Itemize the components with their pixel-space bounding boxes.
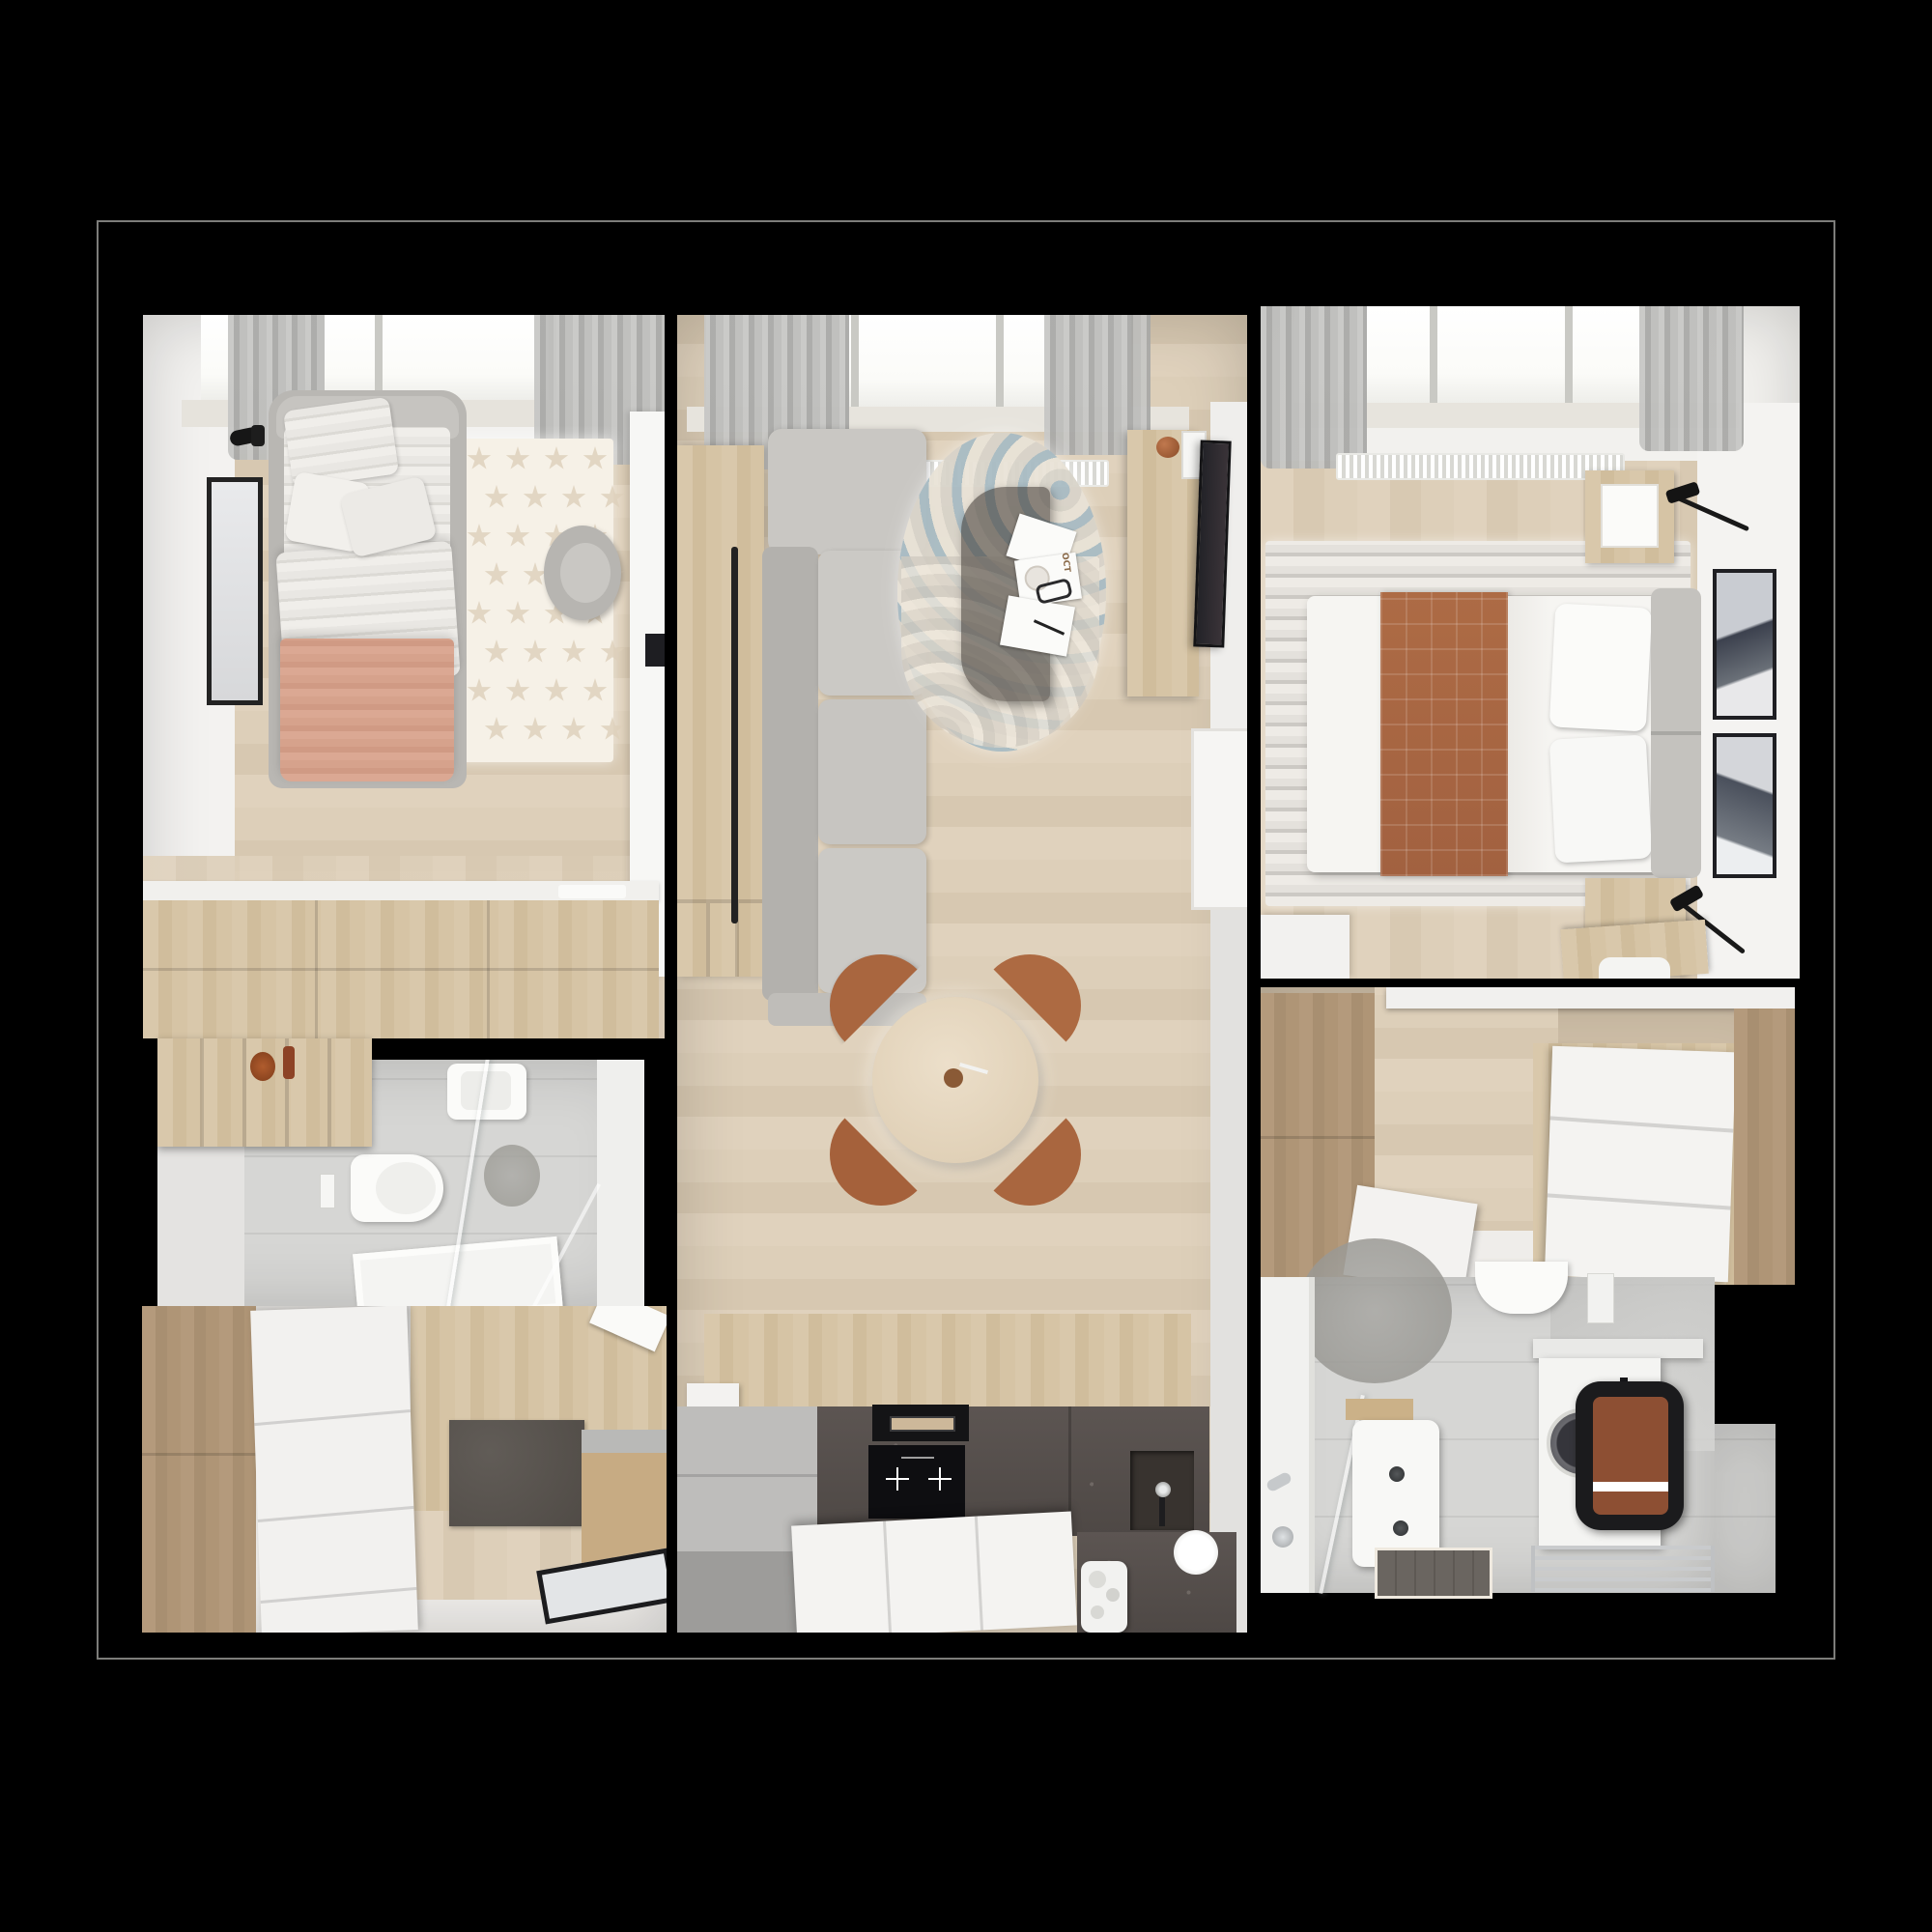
master-wall-art-2	[1713, 733, 1776, 878]
star-motif-icon	[484, 485, 509, 510]
master-radiator	[1336, 453, 1625, 480]
magazine-oct-label: OCT	[1059, 553, 1071, 574]
star-motif-icon	[467, 524, 492, 549]
star-motif-icon	[523, 717, 548, 742]
kids-dresser-tray	[558, 885, 626, 898]
entry-white-wardrobe	[250, 1306, 418, 1633]
star-motif-icon	[561, 639, 586, 665]
master-pillow-1	[1549, 603, 1653, 731]
kids-wall-mirror	[207, 477, 263, 705]
coffee-machine	[1081, 1561, 1127, 1633]
dressing-chest-drawers	[1545, 1046, 1736, 1282]
bath2-washbasin	[1352, 1420, 1439, 1567]
bath2-wall-item	[1587, 1273, 1614, 1323]
kids-laptop	[645, 634, 665, 667]
master-headboard	[1651, 588, 1701, 878]
room-master-bedroom	[1261, 306, 1800, 979]
sink-drain-icon	[1155, 1482, 1171, 1497]
kitchen-wall-wood	[704, 1314, 1191, 1406]
room-entry-hall	[142, 1306, 667, 1633]
entry-doormat	[449, 1420, 584, 1526]
master-pillow-2	[1549, 734, 1653, 863]
plate-stack-icon	[1174, 1530, 1218, 1575]
master-desk-chair	[1599, 957, 1670, 979]
bath2-shelf	[1533, 1339, 1703, 1358]
entry-cabinet-top	[582, 1430, 667, 1453]
room-dressing-hall	[1261, 987, 1795, 1285]
master-plaid-throw	[1380, 592, 1508, 876]
star-motif-icon	[544, 446, 569, 471]
kids-desk-chair-seat	[560, 543, 611, 603]
star-motif-icon	[561, 717, 586, 742]
decor-bottle-icon	[250, 1052, 275, 1081]
room-living-kitchen: OCT	[677, 315, 1247, 1633]
room-bathroom-shower	[157, 1038, 644, 1310]
star-motif-icon	[505, 524, 530, 549]
kids-dresser	[143, 900, 659, 1038]
kids-window-mullion	[375, 315, 383, 400]
star-motif-icon	[523, 485, 548, 510]
star-motif-icon	[505, 678, 530, 703]
bath2-dark-mat	[1375, 1548, 1492, 1599]
basin-faucet-icon-2	[1393, 1520, 1408, 1536]
sofa-seat-2	[818, 699, 926, 844]
bath2-floor-ext	[1715, 1424, 1776, 1593]
star-motif-icon	[561, 485, 586, 510]
kids-pink-blanket	[280, 639, 454, 781]
flush-plate	[320, 1174, 335, 1208]
master-white-dresser	[1261, 915, 1350, 979]
room-bathroom-laundry	[1261, 1277, 1776, 1593]
basin-faucet-icon	[1389, 1466, 1405, 1482]
floor-plan-render: OCT	[0, 0, 1932, 1932]
kitchen-island	[791, 1511, 1077, 1633]
star-motif-icon	[523, 639, 548, 665]
rust-towel	[1593, 1397, 1668, 1515]
star-motif-icon	[544, 678, 569, 703]
star-motif-icon	[505, 446, 530, 471]
faucet-icon	[1159, 1497, 1165, 1526]
star-motif-icon	[467, 601, 492, 626]
star-motif-icon	[484, 717, 509, 742]
table-decor-bowl	[944, 1068, 963, 1088]
bath1-open-shelf	[157, 1038, 372, 1147]
stone-circle-decor	[484, 1145, 540, 1207]
star-motif-icon	[582, 678, 608, 703]
induction-hob	[868, 1445, 965, 1519]
tv-wall-panel	[677, 445, 764, 977]
decor-ball-icon	[1156, 437, 1179, 458]
toilet-seat	[376, 1162, 436, 1214]
room-kids-bedroom	[143, 315, 665, 1038]
wall-sconce-head-icon	[251, 425, 265, 446]
star-motif-icon	[505, 601, 530, 626]
nightstand-tray	[1601, 484, 1659, 548]
star-motif-icon	[484, 562, 509, 587]
bath-faucet-icon-2	[1272, 1526, 1293, 1548]
sofa-backrest	[762, 547, 818, 1001]
entry-wardrobe	[142, 1306, 256, 1633]
decor-bottle-icon	[283, 1046, 295, 1079]
master-curtain-left	[1261, 306, 1367, 469]
dressing-wood-panel-right	[1734, 1009, 1795, 1285]
bath2-stone-circle	[1297, 1238, 1452, 1383]
bath1-wall-right	[597, 1060, 644, 1310]
towel-rail	[1531, 1546, 1715, 1592]
master-curtain-right	[1639, 306, 1744, 451]
kitchen-sink	[1130, 1451, 1194, 1530]
master-sheet-fold	[1508, 596, 1552, 872]
star-motif-icon	[484, 639, 509, 665]
master-wall-art-1	[1713, 569, 1776, 720]
extractor-hood	[872, 1405, 969, 1441]
bath2-wood-shelf	[1346, 1399, 1413, 1420]
door-opening	[1191, 728, 1247, 910]
star-motif-icon	[467, 446, 492, 471]
star-motif-icon	[582, 446, 608, 471]
dressing-counter-edge	[1386, 987, 1795, 1009]
soundbar-rail	[731, 547, 738, 923]
sofa-chaise	[768, 429, 926, 554]
star-motif-icon	[467, 678, 492, 703]
